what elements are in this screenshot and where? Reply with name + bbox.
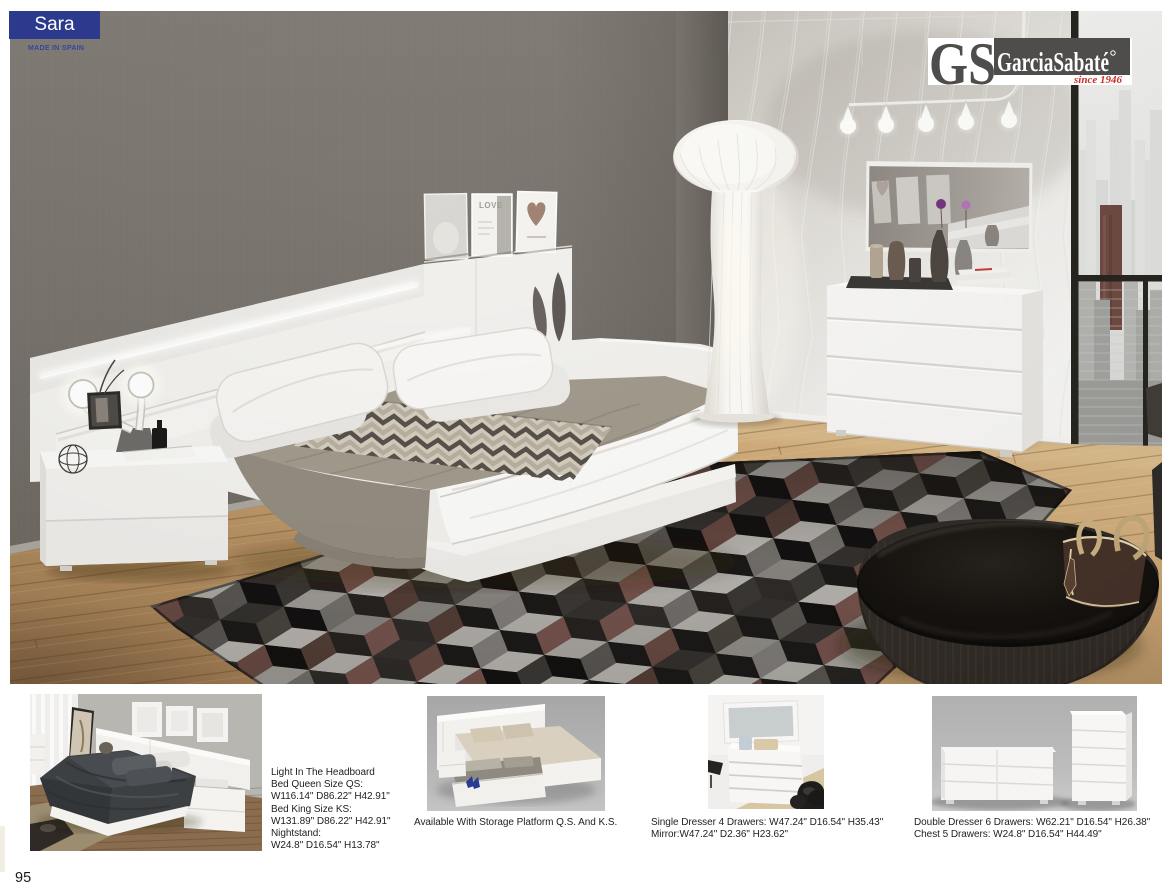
svg-text:since 1946: since 1946 xyxy=(1073,74,1122,86)
svg-text:GS: GS xyxy=(929,31,996,97)
svg-text:GarciaSabaté: GarciaSabaté xyxy=(997,47,1109,77)
